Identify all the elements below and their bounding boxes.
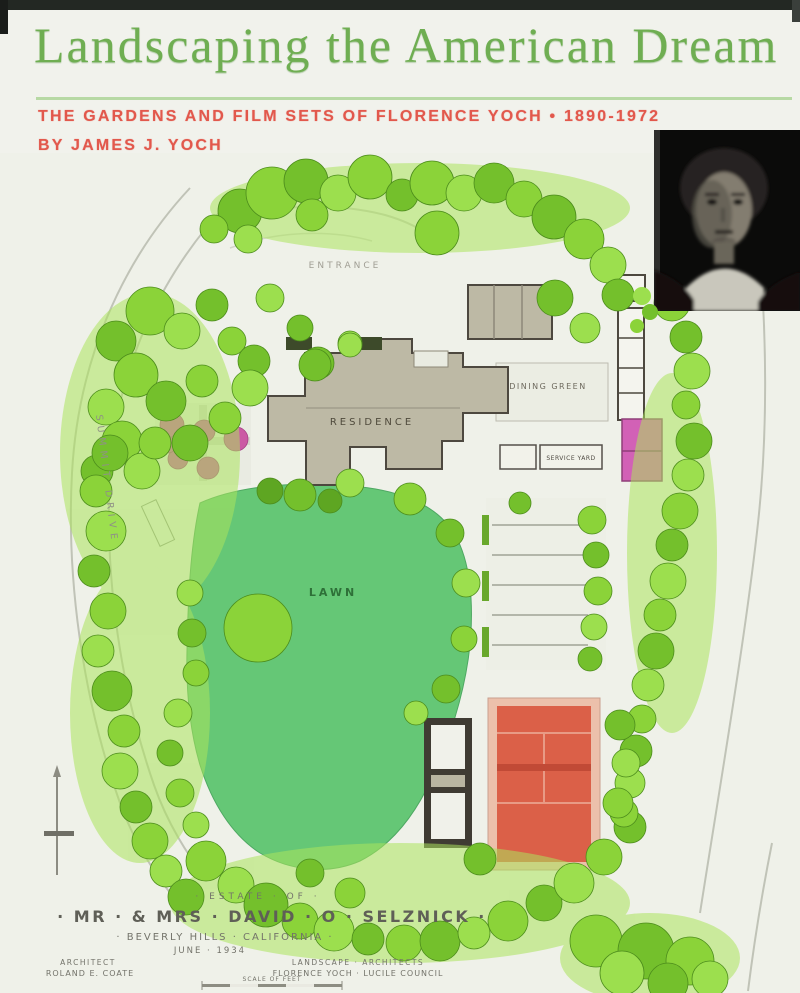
dining-green-label: DINING GREEN <box>509 382 586 391</box>
entrance-label: ENTRANCE <box>309 261 382 271</box>
portrait-art <box>654 130 800 311</box>
book-cover: Landscaping the American Dream THE GARDE… <box>0 0 800 993</box>
tennis-court <box>488 698 600 870</box>
titleblock-line4: JUNE · 1934 <box>173 946 246 956</box>
scan-corner-left <box>0 0 8 34</box>
lawn-label: LAWN <box>309 586 357 599</box>
garden-pavilion <box>424 718 472 848</box>
credit-left-role: ARCHITECT <box>60 958 116 967</box>
title-rule <box>36 97 792 100</box>
residence-label: RESIDENCE <box>330 417 414 428</box>
scan-top-bar <box>0 0 800 10</box>
titleblock-line2: · MR · & MRS · DAVID · O · SELZNICK · <box>57 907 487 926</box>
titleblock-line3: · BEVERLY HILLS · CALIFORNIA · <box>116 932 333 943</box>
foliage-sprigs <box>628 286 672 340</box>
dining-green-panel <box>496 363 608 421</box>
scale-label: SCALE OF FEET <box>243 976 302 983</box>
service-yard-label: SERVICE YARD <box>546 455 595 462</box>
credit-left-name: ROLAND E. COATE <box>46 969 134 978</box>
book-subtitle: THE GARDENS AND FILM SETS OF FLORENCE YO… <box>38 108 660 126</box>
book-title: Landscaping the American Dream <box>34 16 796 74</box>
titleblock-line1: · ESTATE · OF · <box>195 892 320 902</box>
credit-right-role: LANDSCAPE · ARCHITECTS <box>292 958 424 967</box>
florence-yoch-portrait <box>654 130 800 311</box>
